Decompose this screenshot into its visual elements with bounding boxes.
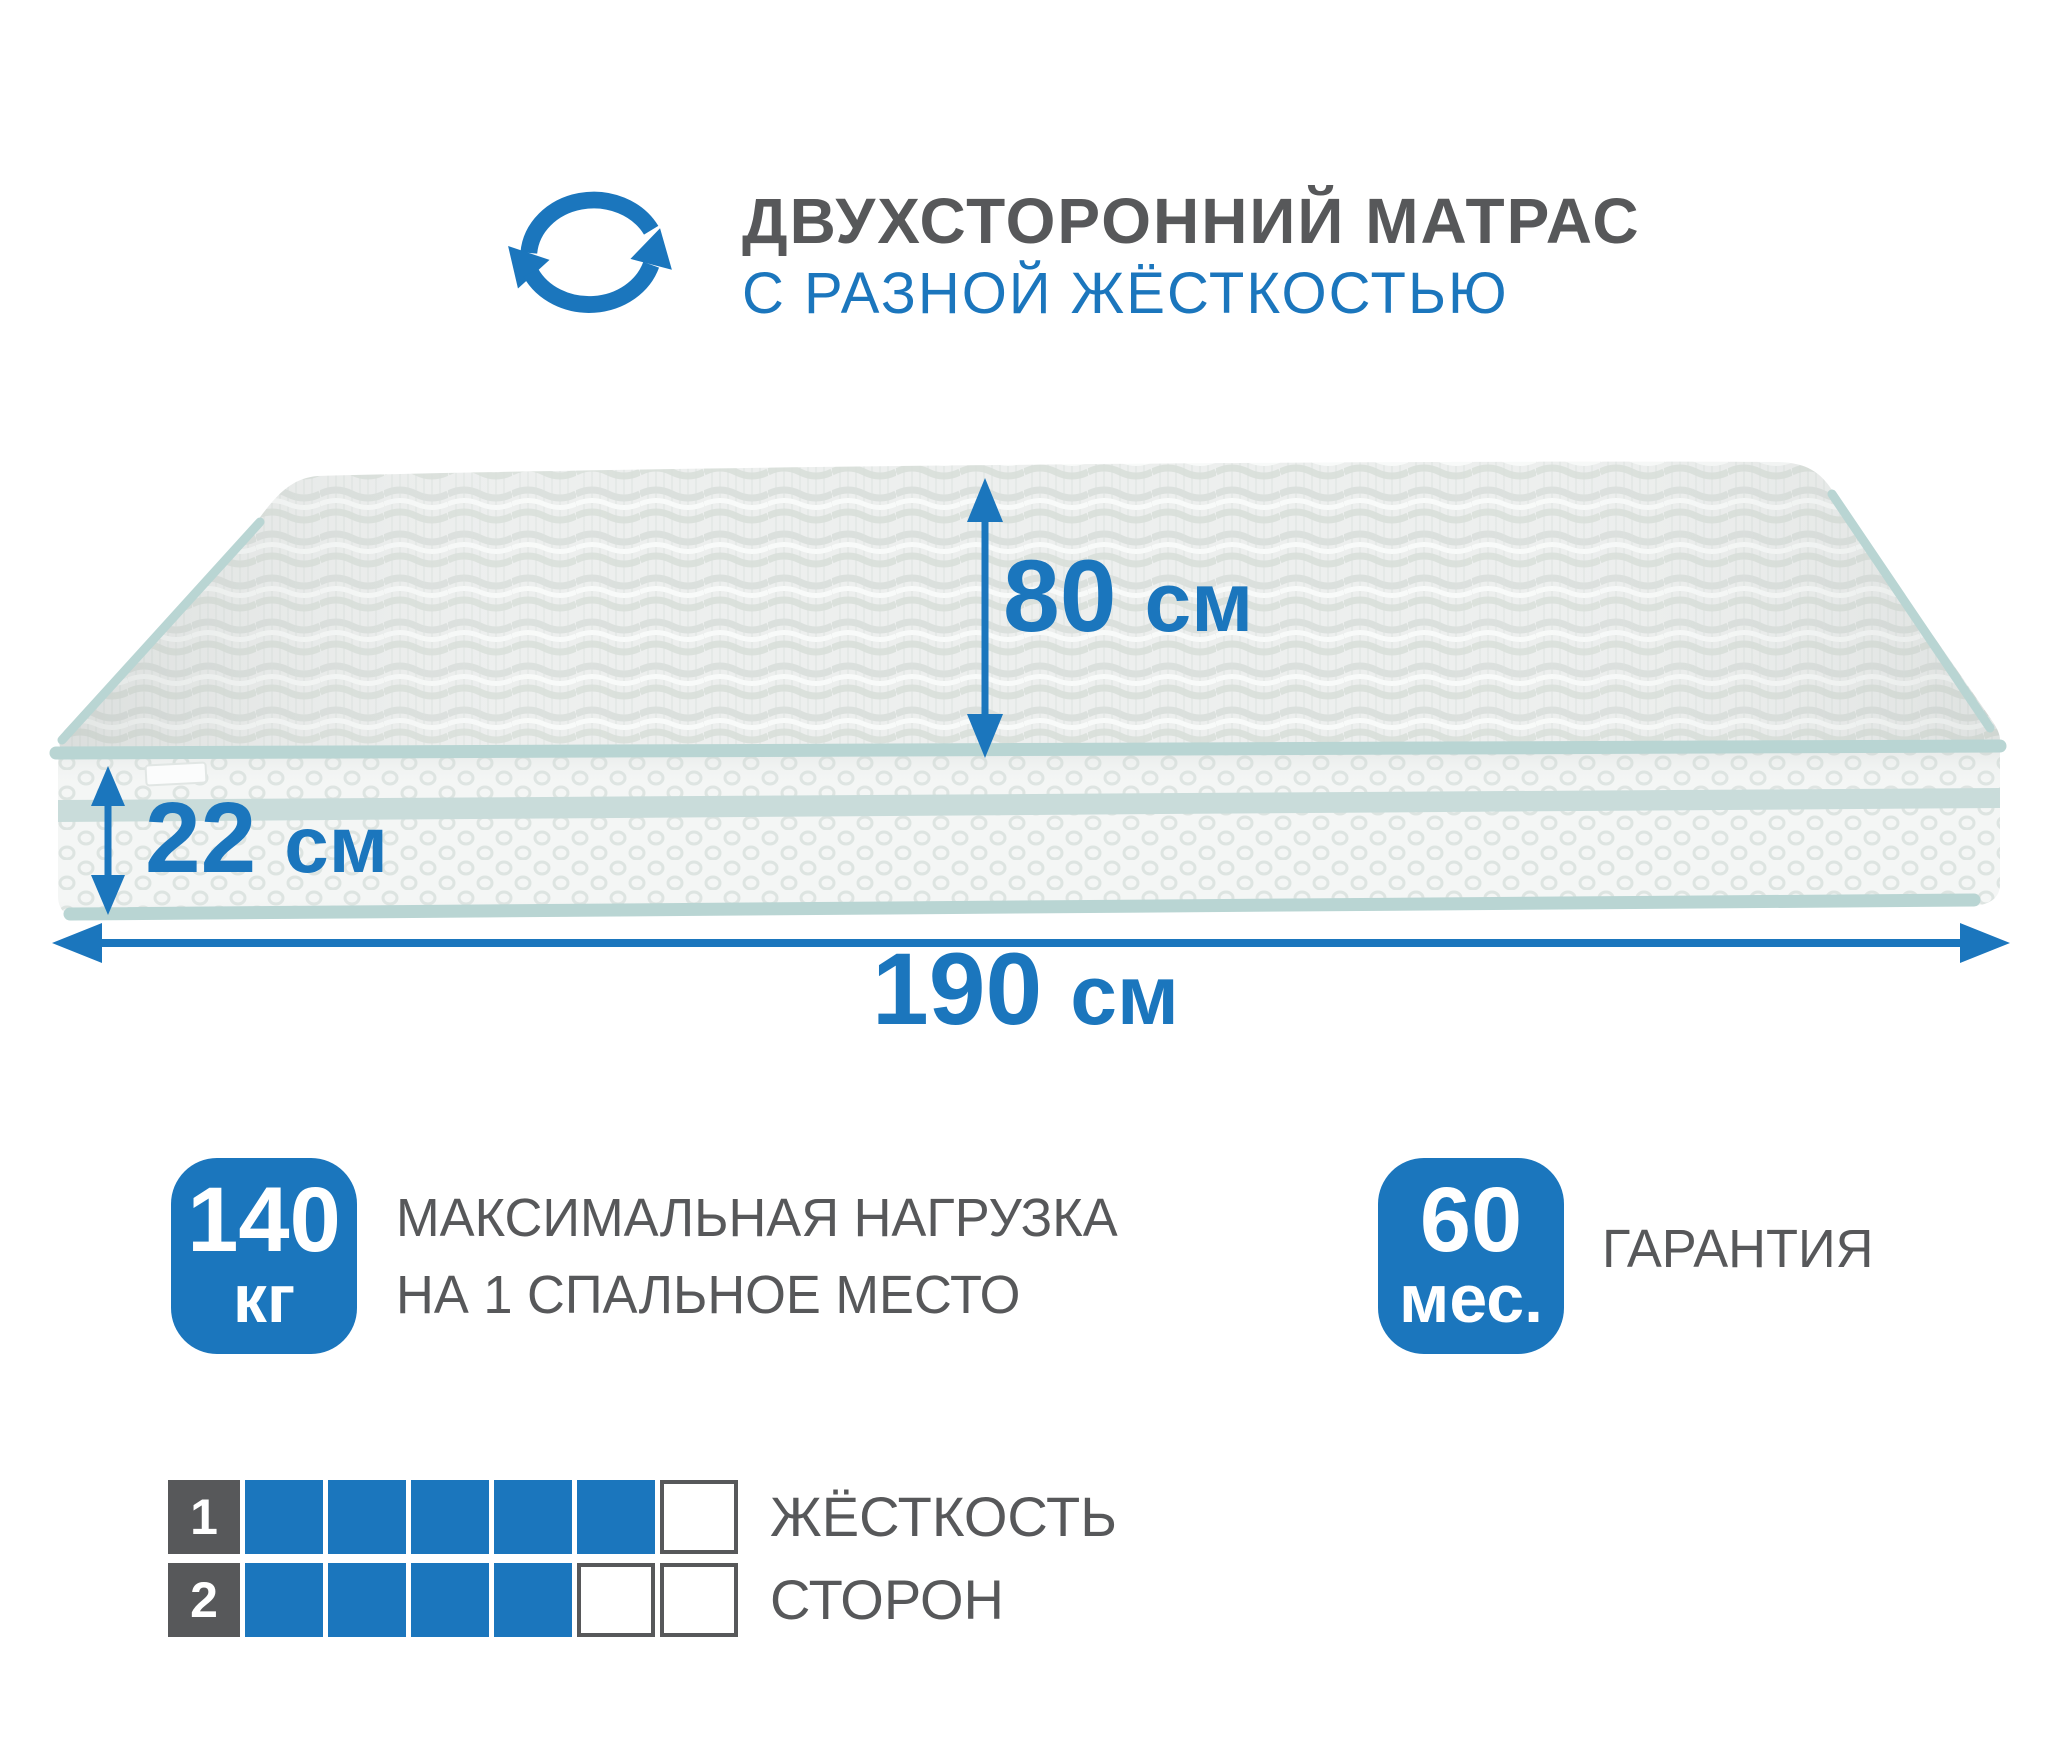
firmness-side-number: 1: [168, 1480, 240, 1554]
length-unit: см: [1070, 953, 1179, 1037]
height-dimension-label: 22 см: [145, 788, 388, 888]
max-load-label-line1: МАКСИМАЛЬНАЯ НАГРУЗКА: [396, 1180, 1118, 1257]
warranty-value: 60: [1420, 1177, 1522, 1264]
height-unit: см: [284, 805, 388, 885]
max-load-unit: кг: [233, 1264, 295, 1335]
mattress-front-piping: [56, 746, 2000, 753]
firmness-row: 2: [168, 1563, 738, 1637]
firmness-cell-filled: [245, 1480, 323, 1554]
firmness-cell-empty: [577, 1563, 655, 1637]
length-value: 190: [872, 938, 1042, 1040]
firmness-label-line1: ЖЁСТКОСТЬ: [770, 1480, 1117, 1554]
mattress-illustration: [0, 440, 2048, 980]
firmness-cell-filled: [328, 1563, 406, 1637]
height-value: 22: [145, 788, 256, 888]
firmness-row: 1: [168, 1480, 738, 1554]
max-load-badge: 140 кг: [171, 1158, 357, 1354]
firmness-label-line2: СТОРОН: [770, 1563, 1004, 1637]
firmness-cell-filled: [494, 1480, 572, 1554]
depth-unit: см: [1144, 560, 1253, 644]
depth-dimension-label: 80 см: [1003, 545, 1253, 647]
page-title: ДВУХСТОРОННИЙ МАТРАС: [742, 184, 1641, 258]
firmness-cell-filled: [577, 1480, 655, 1554]
firmness-cell-filled: [411, 1563, 489, 1637]
depth-value: 80: [1003, 545, 1116, 647]
firmness-cell-filled: [245, 1563, 323, 1637]
max-load-label: МАКСИМАЛЬНАЯ НАГРУЗКА НА 1 СПАЛЬНОЕ МЕСТ…: [396, 1180, 1118, 1334]
page-subtitle: С РАЗНОЙ ЖЁСТКОСТЬЮ: [742, 260, 1509, 327]
firmness-cell-empty: [660, 1563, 738, 1637]
warranty-badge: 60 мес.: [1378, 1158, 1564, 1354]
rotate-arrows-icon: [505, 176, 673, 324]
firmness-cell-filled: [494, 1563, 572, 1637]
firmness-cell-empty: [660, 1480, 738, 1554]
firmness-cell-filled: [411, 1480, 489, 1554]
max-load-value: 140: [187, 1177, 341, 1264]
length-dimension-label: 190 см: [872, 938, 1179, 1040]
firmness-side-number: 2: [168, 1563, 240, 1637]
max-load-label-line2: НА 1 СПАЛЬНОЕ МЕСТО: [396, 1257, 1118, 1334]
rotate-arrowhead-right: [630, 228, 671, 269]
firmness-grid: 12: [168, 1480, 738, 1637]
firmness-cell-filled: [328, 1480, 406, 1554]
warranty-label: ГАРАНТИЯ: [1602, 1222, 1873, 1276]
infographic-canvas: ДВУХСТОРОННИЙ МАТРАС С РАЗНОЙ ЖЁСТКОСТЬЮ: [0, 0, 2048, 1757]
warranty-unit: мес.: [1399, 1264, 1543, 1335]
